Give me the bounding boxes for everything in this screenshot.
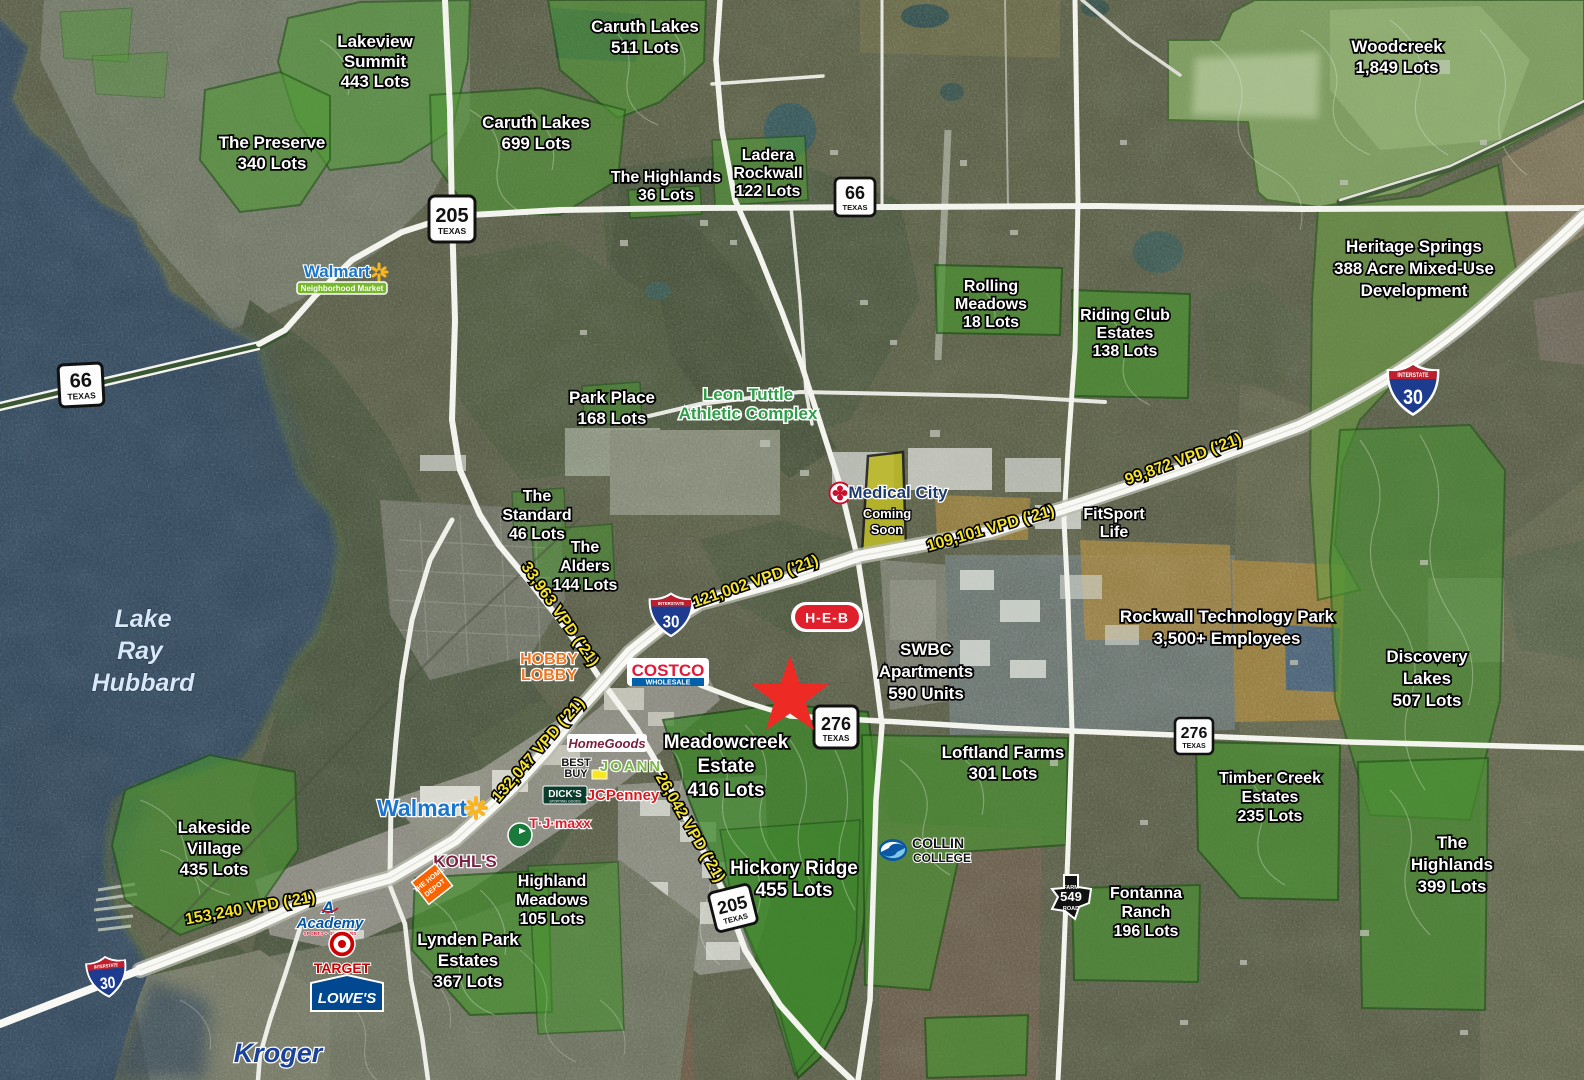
svg-text:Lakeview: Lakeview (337, 32, 413, 51)
svg-text:66: 66 (845, 183, 865, 203)
svg-text:Meadows: Meadows (955, 296, 1027, 313)
svg-text:18 Lots: 18 Lots (963, 314, 1019, 331)
svg-text:66: 66 (69, 369, 92, 392)
svg-text:Ray: Ray (117, 637, 164, 665)
svg-text:SPORTING GOODS: SPORTING GOODS (549, 800, 581, 804)
svg-text:455 Lots: 455 Lots (755, 880, 832, 901)
svg-text:TARGET: TARGET (314, 960, 371, 976)
svg-text:Fontanna: Fontanna (1110, 885, 1182, 902)
svg-text:443 Lots: 443 Lots (341, 72, 410, 91)
svg-text:Highlands: Highlands (1411, 855, 1493, 874)
svg-text:Estate: Estate (697, 756, 754, 777)
svg-text:Loftland Farms: Loftland Farms (942, 743, 1065, 762)
svg-text:Coming: Coming (863, 506, 911, 521)
svg-text:Athletic Complex: Athletic Complex (679, 404, 818, 423)
svg-text:Academy: Academy (296, 915, 364, 932)
svg-text:699 Lots: 699 Lots (502, 134, 571, 153)
svg-text:Meadowcreek: Meadowcreek (664, 732, 789, 753)
svg-text:Estates: Estates (438, 951, 498, 970)
svg-text:SWBC: SWBC (900, 640, 952, 659)
svg-text:LOBBY: LOBBY (521, 667, 577, 684)
svg-text:The Highlands: The Highlands (611, 169, 721, 186)
svg-text:144 Lots: 144 Lots (553, 577, 618, 594)
svg-text:TEXAS: TEXAS (67, 390, 96, 401)
svg-text:276: 276 (1181, 725, 1208, 742)
svg-text:367 Lots: 367 Lots (434, 972, 503, 991)
svg-text:590 Units: 590 Units (888, 684, 964, 703)
svg-text:105 Lots: 105 Lots (520, 911, 585, 928)
svg-text:Discovery: Discovery (1386, 647, 1468, 666)
svg-text:The: The (571, 539, 600, 556)
svg-text:549: 549 (1060, 889, 1082, 904)
svg-text:Walmart: Walmart (377, 795, 467, 821)
svg-text:Lynden Park: Lynden Park (417, 930, 519, 949)
svg-text:TEXAS: TEXAS (842, 203, 867, 212)
svg-text:TEXAS: TEXAS (1182, 743, 1206, 750)
svg-text:122 Lots: 122 Lots (736, 183, 801, 200)
svg-text:COLLEGE: COLLEGE (913, 851, 971, 865)
svg-text:Estates: Estates (1097, 325, 1154, 342)
svg-text:Rockwall: Rockwall (733, 165, 802, 182)
svg-text:HomeGoods: HomeGoods (568, 736, 645, 751)
svg-text:Riding Club: Riding Club (1080, 307, 1170, 324)
svg-text:Rockwall Technology Park: Rockwall Technology Park (1120, 607, 1335, 626)
svg-text:196 Lots: 196 Lots (1114, 923, 1179, 940)
svg-text:340 Lots: 340 Lots (238, 154, 307, 173)
svg-text:Alders: Alders (560, 558, 610, 575)
svg-text:TEXAS: TEXAS (438, 226, 467, 236)
svg-text:Woodcreek: Woodcreek (1351, 37, 1443, 56)
svg-text:FitSport: FitSport (1083, 506, 1145, 523)
svg-text:JCPenney: JCPenney (587, 787, 660, 804)
svg-text:The: The (523, 488, 552, 505)
svg-text:Park Place: Park Place (569, 388, 655, 407)
svg-text:Medical City: Medical City (848, 483, 948, 502)
svg-text:301 Lots: 301 Lots (969, 764, 1038, 783)
svg-text:Ranch: Ranch (1122, 904, 1171, 921)
svg-text:Lakeside: Lakeside (178, 818, 251, 837)
svg-text:Hubbard: Hubbard (92, 669, 196, 697)
svg-text:Heritage Springs: Heritage Springs (1346, 237, 1482, 256)
svg-text:LOWE'S: LOWE'S (318, 990, 377, 1007)
svg-text:Caruth Lakes: Caruth Lakes (591, 17, 699, 36)
svg-text:COLLIN: COLLIN (912, 835, 964, 851)
svg-text:Standard: Standard (502, 507, 571, 524)
svg-text:1,849 Lots: 1,849 Lots (1355, 58, 1438, 77)
svg-text:WHOLESALE: WHOLESALE (646, 680, 691, 687)
svg-text:205: 205 (435, 205, 468, 227)
svg-text:Walmart: Walmart (304, 262, 371, 281)
svg-text:Estates: Estates (1242, 789, 1299, 806)
svg-text:Lake: Lake (115, 605, 172, 633)
svg-text:416 Lots: 416 Lots (687, 780, 764, 801)
svg-text:Hickory Ridge: Hickory Ridge (730, 858, 858, 879)
svg-text:Caruth Lakes: Caruth Lakes (482, 113, 590, 132)
svg-text:Kroger: Kroger (234, 1038, 324, 1068)
svg-text:Rolling: Rolling (964, 278, 1018, 295)
svg-text:T·J·maxx: T·J·maxx (529, 815, 591, 831)
svg-text:The Preserve: The Preserve (219, 133, 326, 152)
svg-text:46 Lots: 46 Lots (509, 526, 565, 543)
svg-text:511 Lots: 511 Lots (611, 38, 679, 57)
svg-text:Soon: Soon (871, 522, 904, 537)
svg-text:BUY: BUY (564, 768, 588, 780)
svg-text:Meadows: Meadows (516, 892, 588, 909)
svg-text:276: 276 (821, 714, 851, 734)
svg-text:138 Lots: 138 Lots (1093, 343, 1158, 360)
svg-text:435 Lots: 435 Lots (180, 860, 249, 879)
svg-text:ROAD: ROAD (1063, 906, 1079, 912)
svg-text:HOBBY: HOBBY (520, 651, 578, 668)
svg-text:Ladera: Ladera (742, 147, 795, 164)
svg-text:Village: Village (187, 839, 242, 858)
svg-text:399 Lots: 399 Lots (1418, 877, 1487, 896)
svg-text:Lakes: Lakes (1403, 669, 1451, 688)
svg-text:Leon Tuttle: Leon Tuttle (703, 385, 793, 404)
svg-text:388 Acre Mixed-Use: 388 Acre Mixed-Use (1334, 259, 1494, 278)
svg-text:Neighborhood Market: Neighborhood Market (301, 284, 384, 293)
svg-text:Life: Life (1100, 524, 1129, 541)
svg-text:168 Lots: 168 Lots (578, 409, 647, 428)
svg-text:Development: Development (1361, 281, 1468, 300)
svg-text:COSTCO: COSTCO (632, 661, 705, 680)
svg-text:TEXAS: TEXAS (823, 734, 850, 743)
svg-text:Timber Creek: Timber Creek (1219, 770, 1321, 787)
svg-text:Summit: Summit (344, 52, 407, 71)
svg-text:The: The (1437, 833, 1467, 852)
svg-text:Highland: Highland (518, 873, 586, 890)
svg-text:507 Lots: 507 Lots (1393, 691, 1462, 710)
svg-text:235 Lots: 235 Lots (1238, 808, 1303, 825)
svg-text:36 Lots: 36 Lots (638, 187, 694, 204)
svg-text:JOANN: JOANN (600, 758, 663, 775)
svg-text:H-E-B: H-E-B (805, 610, 849, 626)
svg-text:DICK'S: DICK'S (548, 789, 582, 800)
svg-text:Apartments: Apartments (879, 662, 973, 681)
svg-text:3,500+ Employees: 3,500+ Employees (1154, 629, 1301, 648)
